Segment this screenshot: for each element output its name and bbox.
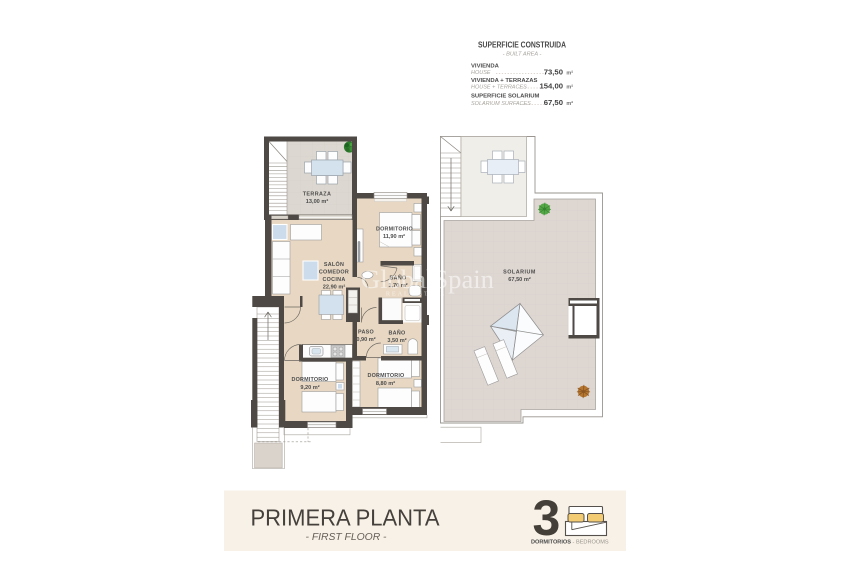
svg-text:m²: m² <box>566 85 573 91</box>
svg-text:11,90 m²: 11,90 m² <box>383 233 405 240</box>
svg-text:22,90 m²: 22,90 m² <box>323 284 346 291</box>
svg-text:67,50: 67,50 <box>544 98 563 107</box>
svg-text:VIVIENDA: VIVIENDA <box>471 64 500 70</box>
svg-text:HOUSE: HOUSE <box>471 70 491 76</box>
svg-text:m²: m² <box>566 71 573 77</box>
svg-text:SALÓN: SALÓN <box>324 260 344 268</box>
svg-text:TERRAZA: TERRAZA <box>303 192 332 198</box>
svg-text:HOUSE + TERRACES: HOUSE + TERRACES <box>471 85 527 91</box>
svg-text:VIVIENDA + TERRAZAS: VIVIENDA + TERRAZAS <box>471 78 537 84</box>
svg-text:- BUILT AREA -: - BUILT AREA - <box>503 52 542 58</box>
svg-text:PRIMERA PLANTA: PRIMERA PLANTA <box>251 505 440 531</box>
svg-text:COCINA: COCINA <box>322 277 345 283</box>
svg-text:SUPERFICIE SOLARIUM: SUPERFICIE SOLARIUM <box>471 94 539 100</box>
svg-text:8,80 m²: 8,80 m² <box>376 380 395 387</box>
svg-text:COMEDOR: COMEDOR <box>319 270 349 276</box>
svg-text:3: 3 <box>533 490 561 546</box>
svg-text:154,00: 154,00 <box>539 82 563 91</box>
svg-text:3,50 m²: 3,50 m² <box>387 337 406 344</box>
svg-text:REAL ESTATE: REAL ESTATE <box>386 291 446 298</box>
svg-text:67,50 m²: 67,50 m² <box>508 276 531 283</box>
svg-text:9,20 m²: 9,20 m² <box>300 384 319 391</box>
svg-text:DORMITORIOS - BEDROOMS: DORMITORIOS - BEDROOMS <box>531 540 609 546</box>
svg-text:- FIRST FLOOR -: - FIRST FLOOR - <box>306 532 388 543</box>
svg-text:DORMITORIO: DORMITORIO <box>376 227 413 233</box>
svg-text:GlobalSpain: GlobalSpain <box>361 264 494 294</box>
svg-text:13,00 m²: 13,00 m² <box>306 198 329 205</box>
svg-text:SOLARIUM: SOLARIUM <box>503 270 536 276</box>
svg-text:PASO: PASO <box>358 330 374 336</box>
svg-text:73,50: 73,50 <box>544 68 563 77</box>
svg-text:SUPERFICIE CONSTRUIDA: SUPERFICIE CONSTRUIDA <box>478 41 566 50</box>
svg-text:DORMITORIO: DORMITORIO <box>368 373 405 379</box>
svg-text:DORMITORIO: DORMITORIO <box>292 377 329 383</box>
svg-text:BAÑO: BAÑO <box>388 330 405 337</box>
svg-text:0,90 m²: 0,90 m² <box>356 336 375 343</box>
svg-text:SOLARIUM SURFACES: SOLARIUM SURFACES <box>471 101 531 107</box>
svg-text:m²: m² <box>566 101 573 107</box>
